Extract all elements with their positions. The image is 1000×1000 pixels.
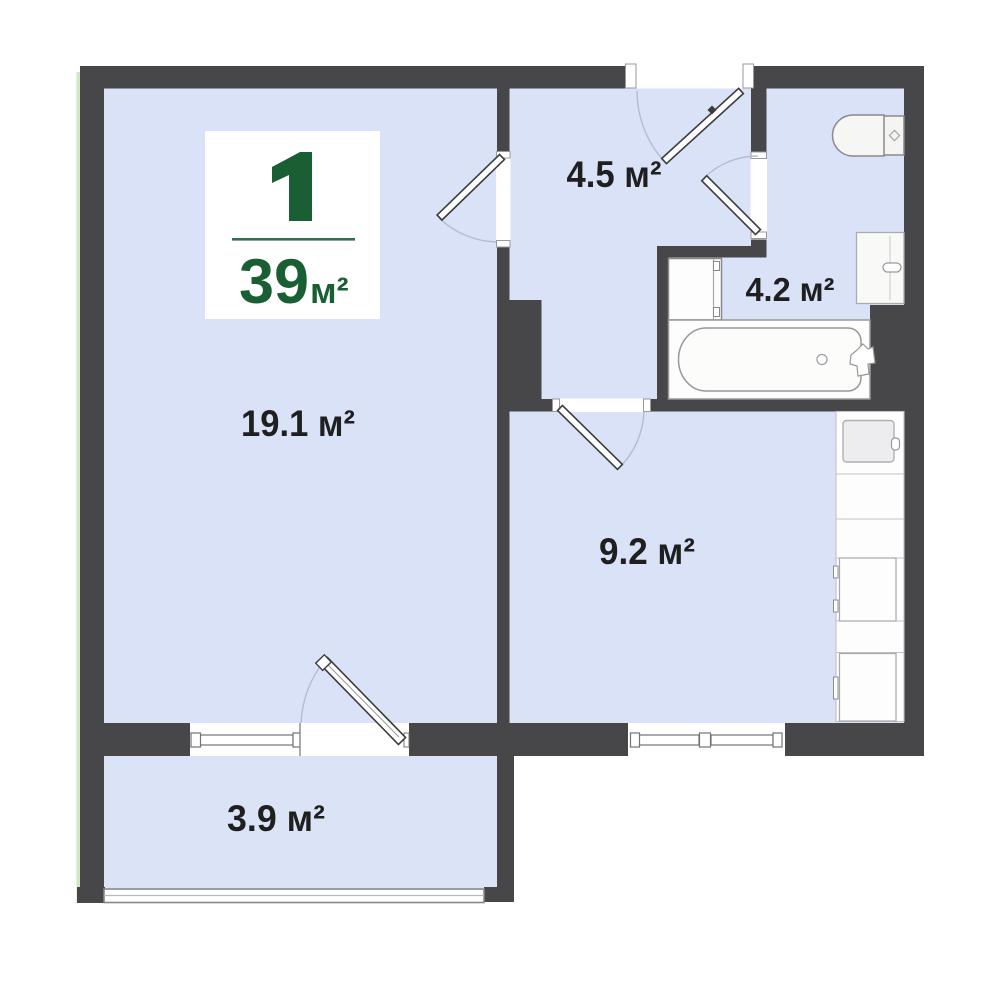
svg-text:м²: м²	[310, 270, 349, 311]
svg-text:3.9 м²: 3.9 м²	[227, 798, 325, 839]
svg-text:4.2 м²: 4.2 м²	[746, 271, 835, 308]
svg-text:19.1 м²: 19.1 м²	[241, 403, 355, 444]
svg-text:9.2 м²: 9.2 м²	[599, 531, 695, 572]
svg-text:4.5 м²: 4.5 м²	[567, 154, 662, 195]
svg-text:39: 39	[239, 247, 309, 317]
